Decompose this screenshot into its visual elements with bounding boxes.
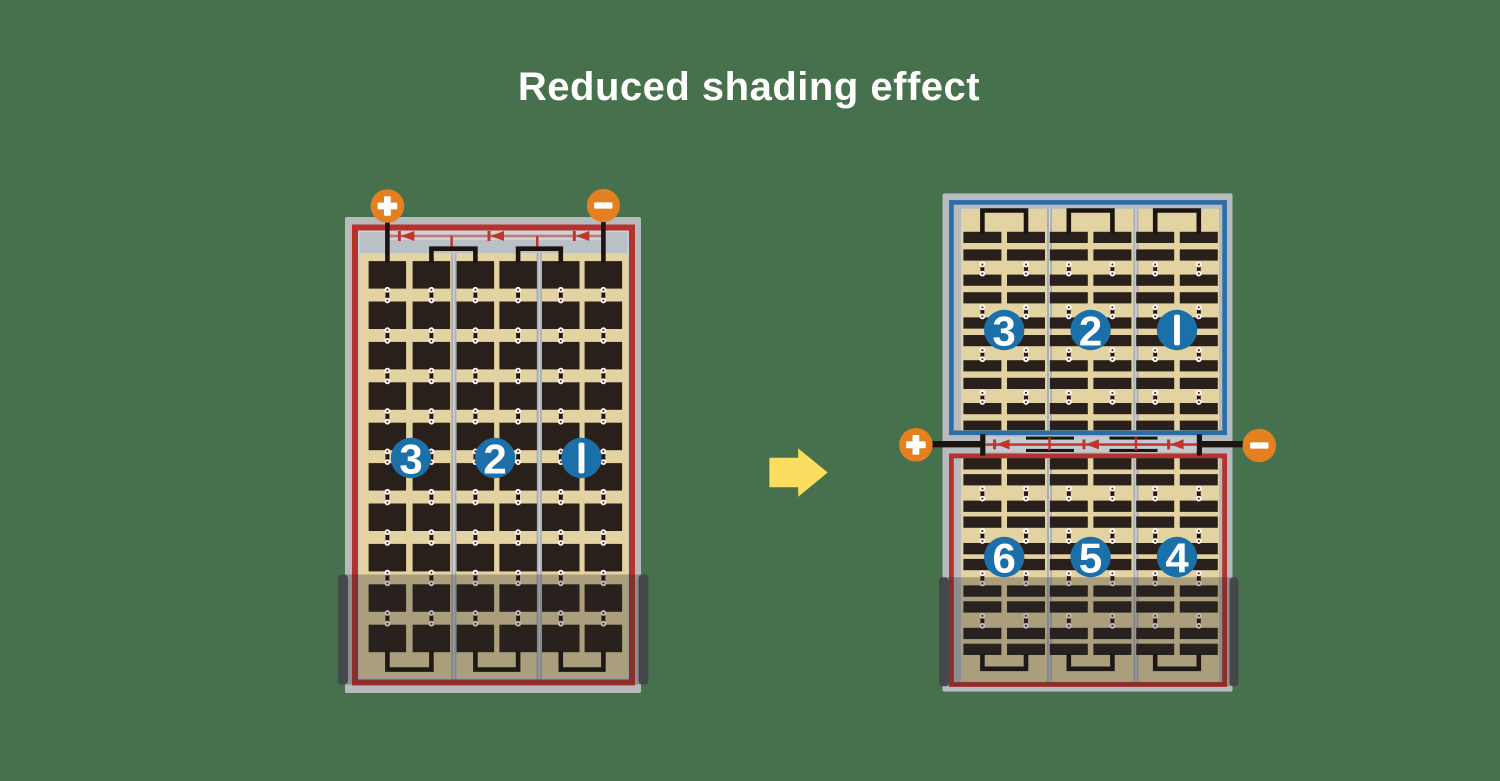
svg-text:6: 6: [993, 534, 1016, 581]
svg-text:5: 5: [1079, 534, 1102, 581]
svg-text:4: 4: [1165, 534, 1189, 581]
svg-text:Reduced shading effect: Reduced shading effect: [518, 65, 980, 109]
svg-text:3: 3: [399, 435, 422, 482]
svg-text:2: 2: [1079, 307, 1102, 354]
svg-text:3: 3: [993, 307, 1016, 354]
svg-text:2: 2: [483, 435, 506, 482]
